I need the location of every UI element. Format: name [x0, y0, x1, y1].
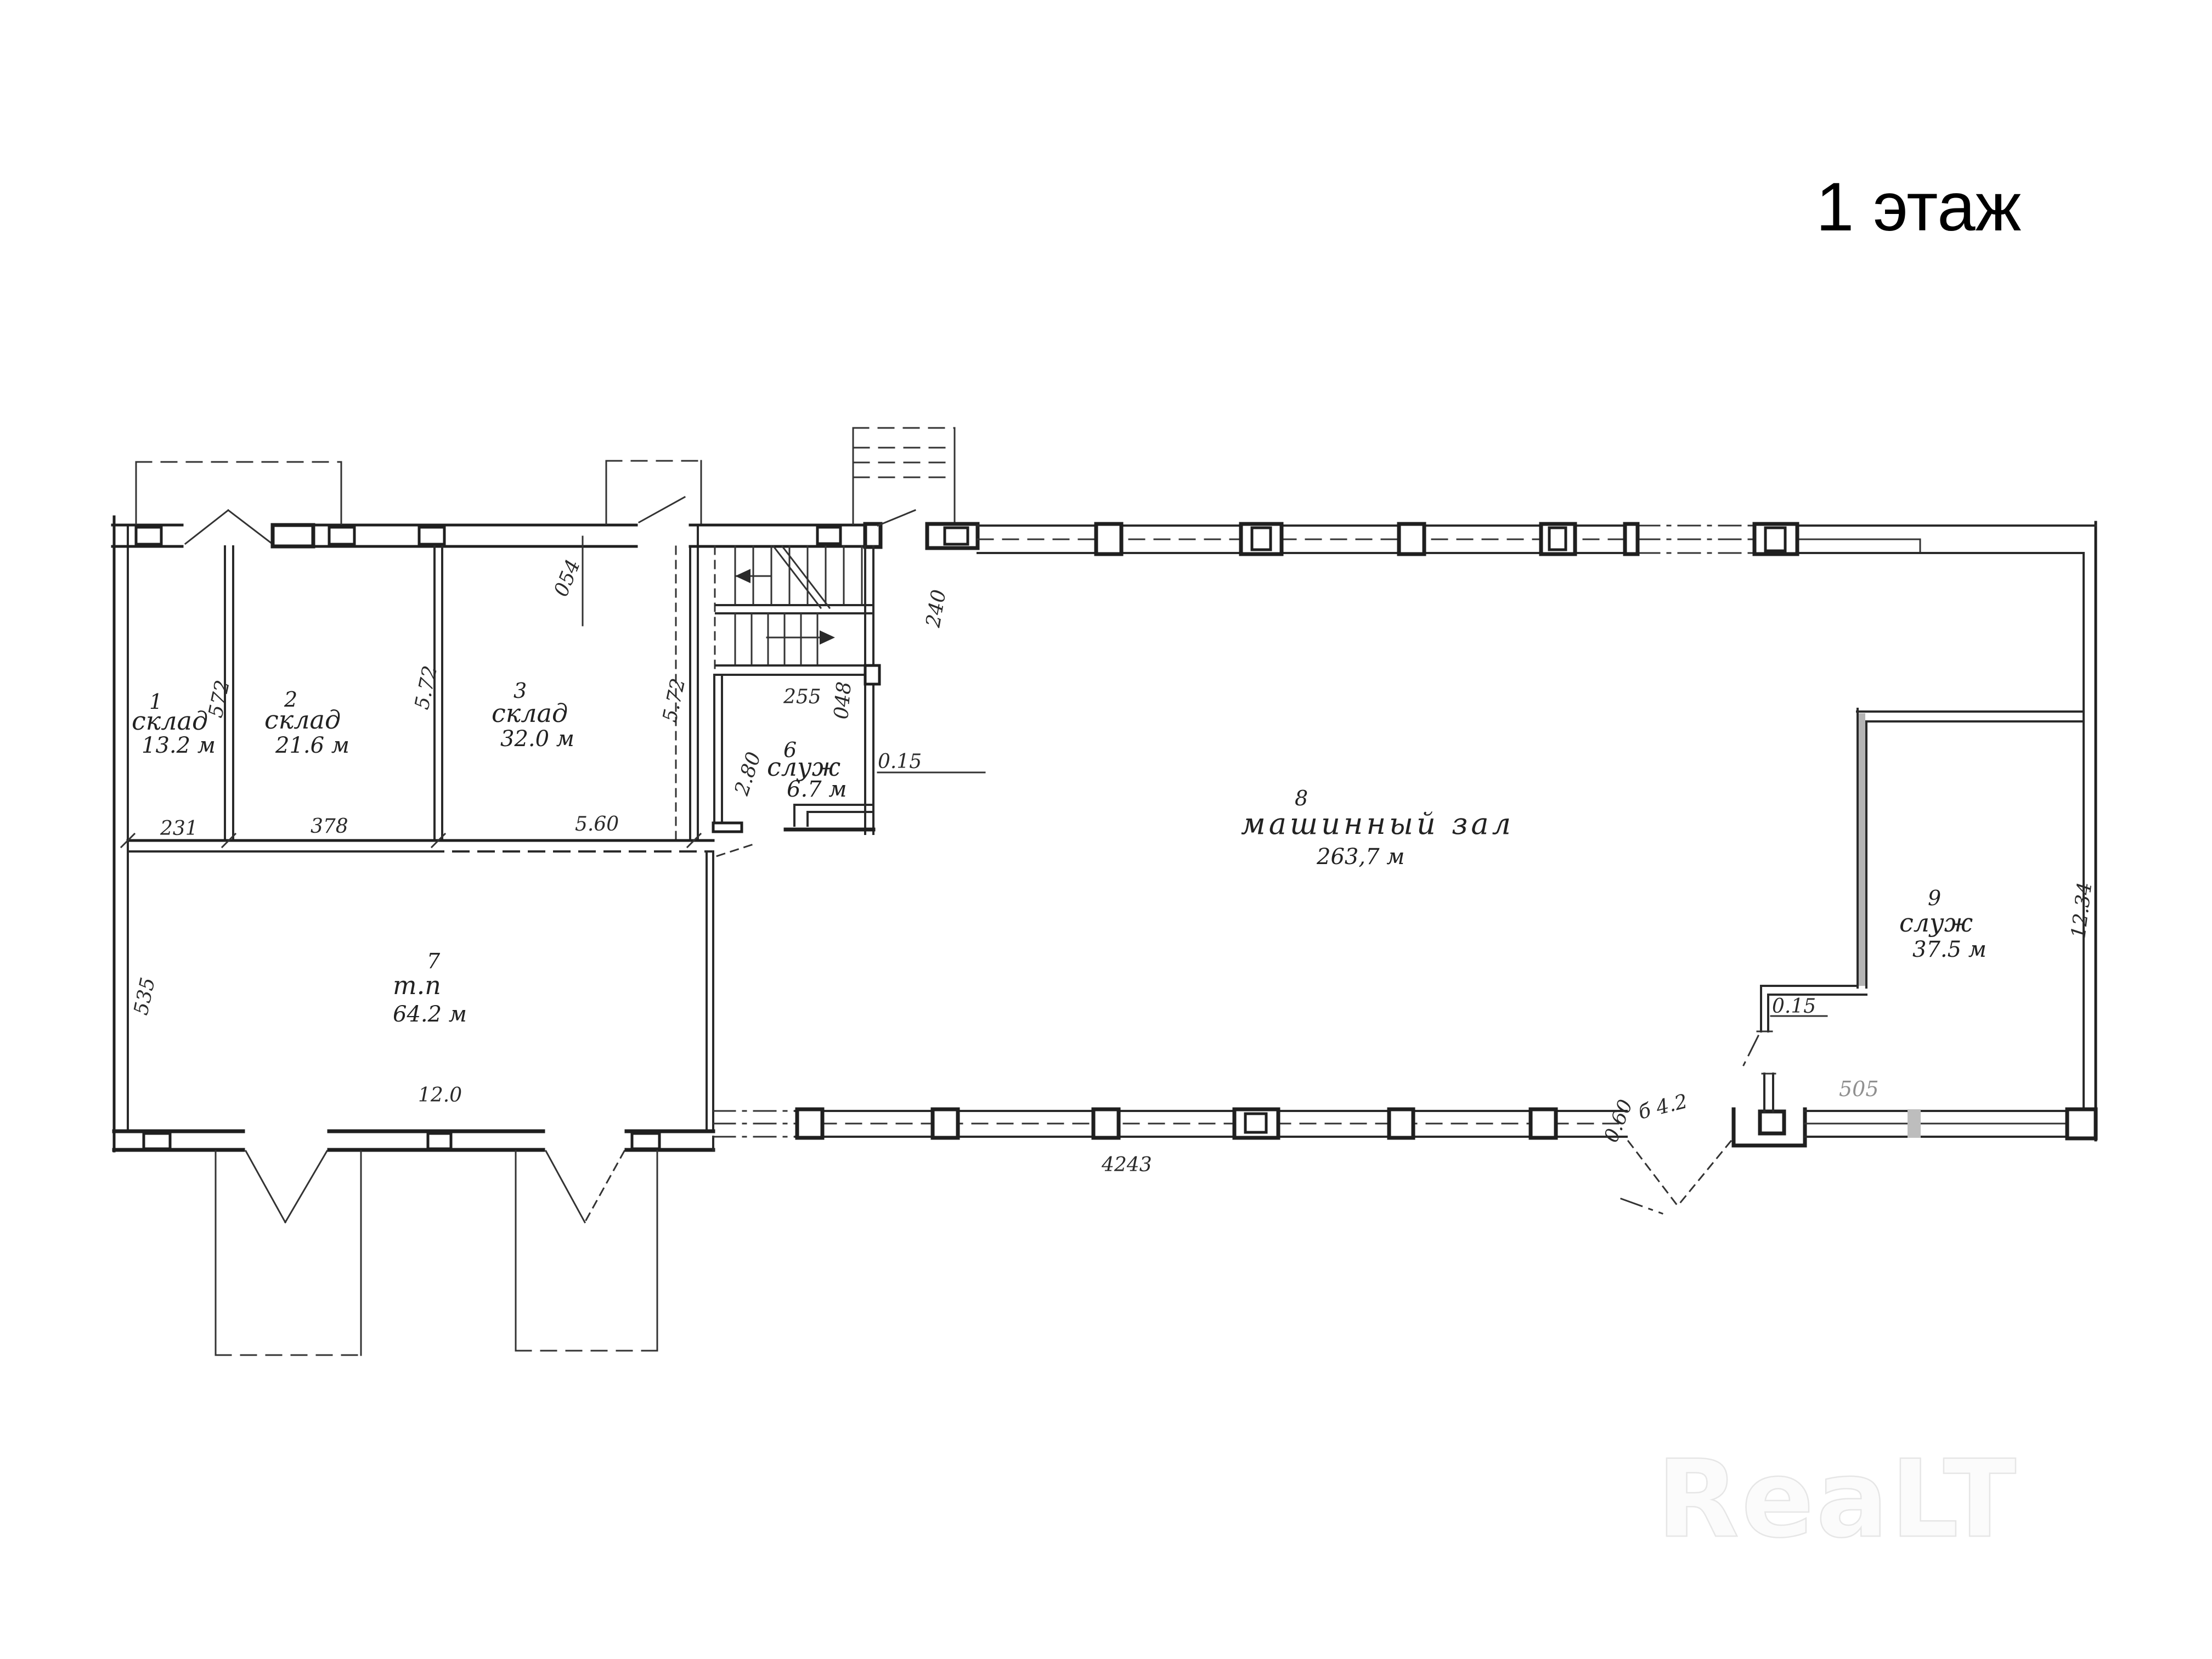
dim-572c: 5.72 [659, 676, 690, 724]
dim-240: 240 [922, 588, 950, 630]
room-8-label: 8 машинный зал 263,7 м [1241, 786, 1514, 870]
svg-text:склад: склад [492, 698, 568, 728]
top-porch-outlines [136, 461, 701, 524]
dim-015-room9: 0.15 [1772, 995, 1816, 1018]
bottom-porch-outlines [216, 1151, 657, 1355]
dim-255: 255 [783, 686, 821, 708]
svg-text:263,7 м: 263,7 м [1316, 844, 1404, 870]
room-6-label: 6 служ 6.7 м [767, 738, 847, 802]
staircase [690, 524, 881, 834]
svg-text:6.7 м: 6.7 м [787, 777, 847, 802]
svg-text:21.6 м: 21.6 м [275, 733, 349, 758]
dim-572b: 5.72 [411, 664, 442, 712]
room-divider-walls [121, 525, 713, 1131]
svg-text:37.5 м: 37.5 м [1912, 937, 1987, 962]
room-labels: 1 склад 13.2 м 2 склад 21.6 м 3 склад 32… [132, 679, 1987, 1027]
dim-505: 505 [1839, 1077, 1879, 1101]
realt-watermark: ReaLT [1657, 1437, 2018, 1561]
dim-048: 048 [830, 681, 856, 720]
dim-1234: 12.34 [2067, 881, 2096, 940]
room-3-label: 3 склад 32.0 м [492, 679, 574, 752]
dim-015-room6: 0.15 [878, 751, 922, 773]
svg-text:т.п: т.п [393, 970, 441, 1000]
dim-560: 5.60 [575, 813, 619, 836]
room-9-label: 9 служ 37.5 м [1899, 886, 1987, 962]
floor-plan-drawing: 1 этаж 1 склад 13.2 м 2 склад 21.6 м 3 с… [0, 0, 2212, 1659]
outer-walls [114, 517, 2096, 1151]
dim-231: 231 [160, 817, 198, 840]
room-7-label: 7 т.п 64.2 м [393, 949, 467, 1027]
dimension-labels: 572 5.72 5.72 054 255 048 240 2.80 0.15 … [130, 556, 2097, 1176]
svg-text:служ: служ [1899, 908, 1973, 938]
dim-120: 12.0 [418, 1084, 462, 1107]
svg-text:64.2 м: 64.2 м [393, 1002, 467, 1027]
svg-text:32.0 м: 32.0 м [500, 726, 574, 752]
dim-054: 054 [550, 556, 585, 600]
top-left-wall [112, 497, 685, 625]
dim-060: 0.60 [1600, 1097, 1637, 1146]
dim-572: 572 [205, 678, 234, 720]
dim-42: б 4.2 [1636, 1090, 1690, 1124]
room-2-label: 2 склад 21.6 м [264, 687, 349, 758]
page-title: 1 этаж [1816, 169, 2022, 245]
svg-text:7: 7 [427, 949, 441, 973]
dim-280: 2.80 [730, 749, 765, 799]
svg-text:склад: склад [132, 706, 208, 736]
machine-hall-bottom-wall [713, 1074, 2096, 1214]
dim-535: 535 [130, 975, 160, 1017]
room-1-label: 1 склад 13.2 м [132, 690, 216, 758]
scanned-floor-plan-page: 1 этаж 1 склад 13.2 м 2 склад 21.6 м 3 с… [0, 0, 2212, 1659]
dim-378: 378 [311, 815, 348, 838]
svg-text:13.2 м: 13.2 м [142, 733, 216, 758]
bottom-left-wall [114, 1131, 713, 1222]
svg-text:9: 9 [1928, 886, 1941, 910]
svg-text:машинный зал: машинный зал [1241, 806, 1514, 841]
dim-4243: 4243 [1101, 1154, 1152, 1176]
machine-hall-top-wall [978, 524, 2096, 554]
svg-text:склад: склад [264, 705, 341, 735]
